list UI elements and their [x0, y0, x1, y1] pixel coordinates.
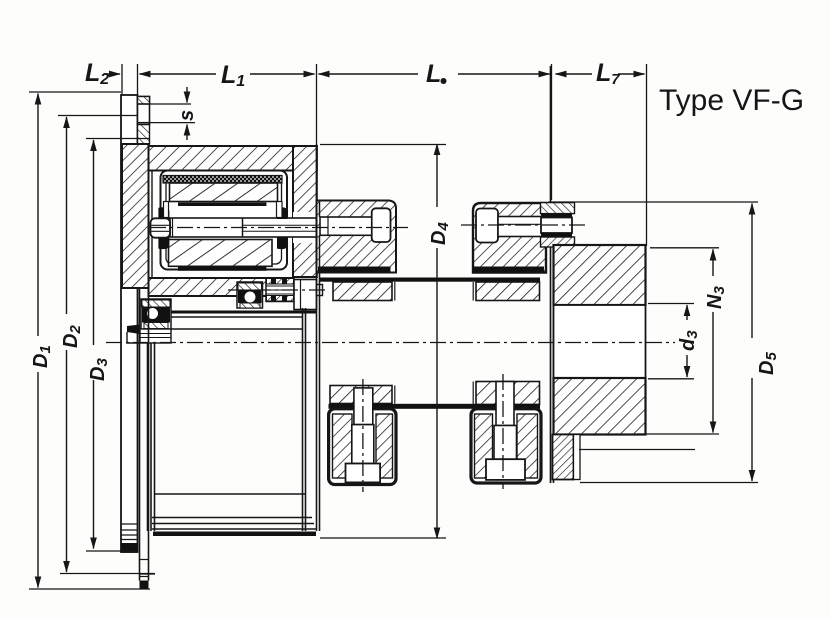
- svg-text:s: s: [176, 110, 198, 121]
- svg-text:Type VF-G: Type VF-G: [659, 84, 804, 117]
- svg-text:L: L: [426, 60, 441, 88]
